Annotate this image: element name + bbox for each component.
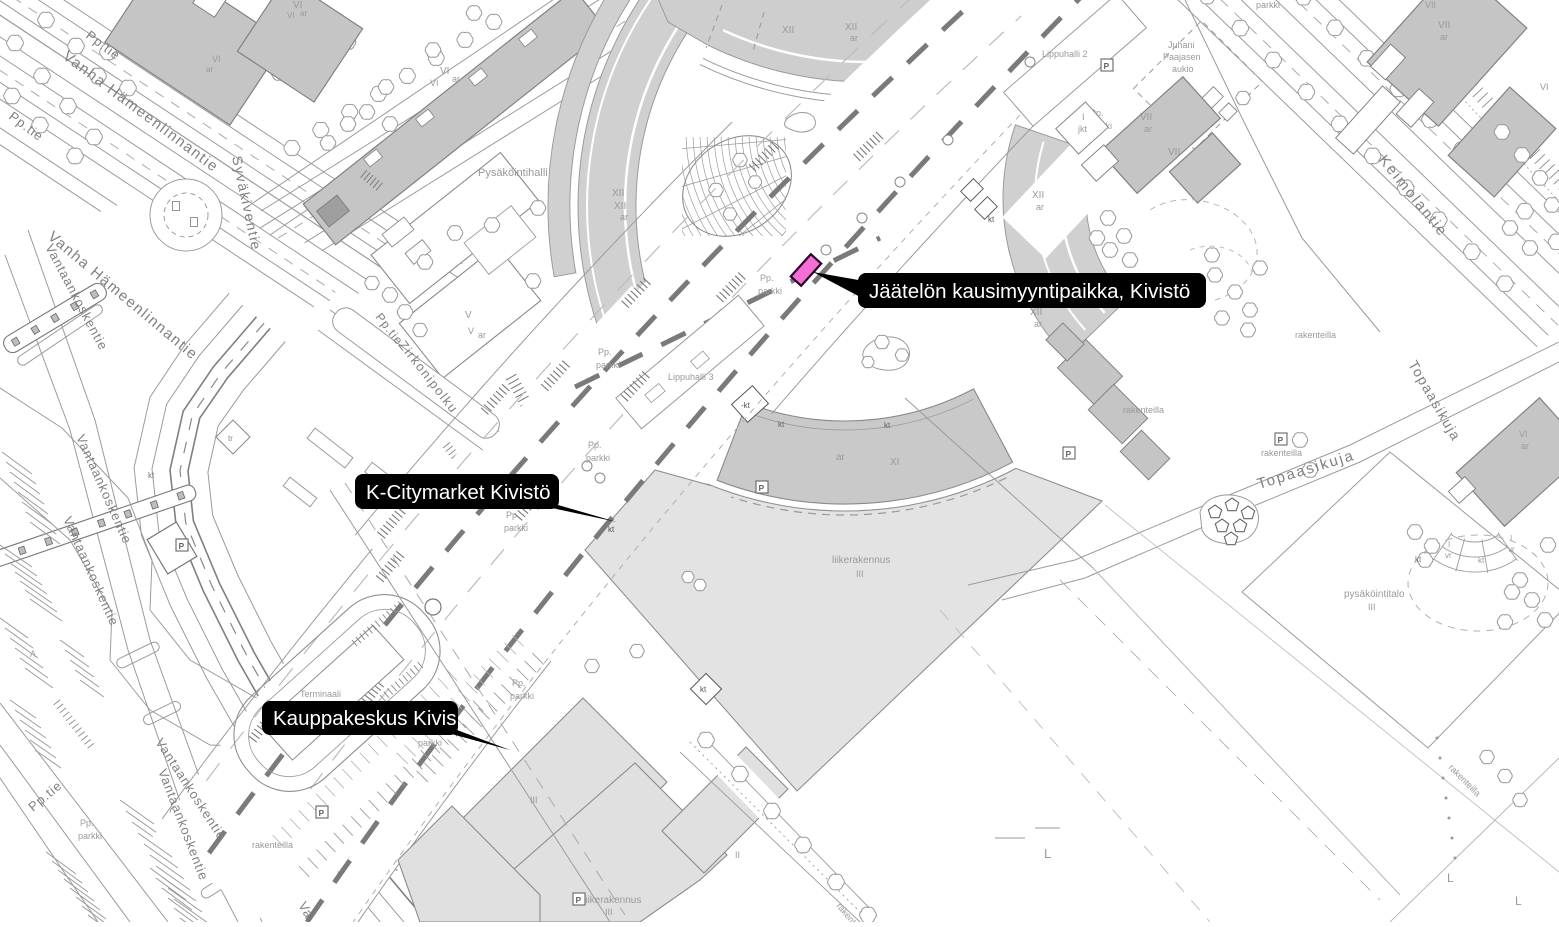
svg-text:Pp.: Pp.: [598, 347, 612, 357]
svg-text:L: L: [1447, 871, 1454, 885]
svg-text:P: P: [179, 541, 185, 551]
svg-text:aukio: aukio: [1172, 64, 1194, 74]
svg-text:parkki: parkki: [78, 831, 102, 841]
svg-text:rakenteilla: rakenteilla: [1123, 405, 1164, 415]
svg-text:Pp.: Pp.: [506, 510, 520, 520]
svg-text:parkki: parkki: [758, 286, 782, 296]
svg-text:parkki: parkki: [596, 360, 620, 370]
svg-text:parkki: parkki: [510, 691, 534, 701]
svg-text:VII: VII: [1425, 0, 1436, 10]
svg-text:VI: VI: [430, 78, 439, 88]
svg-text:VI: VI: [1540, 82, 1549, 92]
svg-text:VI: VI: [440, 66, 449, 77]
svg-text:XII: XII: [782, 25, 794, 36]
svg-text:VII: VII: [1438, 20, 1450, 31]
svg-text:ar: ar: [452, 74, 460, 84]
svg-text:P: P: [576, 895, 582, 905]
svg-text:ar: ar: [300, 9, 307, 18]
svg-text:III: III: [856, 569, 864, 579]
svg-text:rakenteilla: rakenteilla: [1295, 330, 1336, 340]
svg-text:Jäätelön kausimyyntipaikka, Ki: Jäätelön kausimyyntipaikka, Kivistö: [869, 280, 1190, 303]
svg-text:vr: vr: [1445, 551, 1452, 560]
svg-text:jkt: jkt: [1077, 124, 1087, 134]
svg-text:Pp.: Pp.: [80, 818, 94, 828]
svg-text:I: I: [1448, 540, 1450, 549]
svg-text:ar: ar: [206, 65, 213, 74]
svg-text:K-Citymarket Kivistö: K-Citymarket Kivistö: [366, 481, 551, 504]
svg-text:ar: ar: [1144, 124, 1152, 134]
svg-text:parkki: parkki: [586, 453, 610, 463]
svg-text:II: II: [735, 850, 740, 860]
svg-text:ar: ar: [1521, 441, 1529, 451]
svg-text:L: L: [1044, 846, 1051, 861]
svg-text:Kauppakeskus Kivis: Kauppakeskus Kivis: [273, 707, 456, 730]
svg-text:kt: kt: [700, 685, 707, 694]
svg-text:Juhani: Juhani: [1168, 40, 1195, 50]
svg-text:rakenteilla: rakenteilla: [252, 840, 293, 850]
svg-text:V: V: [465, 310, 472, 321]
svg-text:kt: kt: [988, 215, 995, 224]
svg-text:XII: XII: [612, 188, 624, 199]
svg-text:XII: XII: [1032, 190, 1044, 201]
svg-text:P: P: [759, 483, 765, 493]
svg-text:P: P: [1104, 61, 1110, 71]
svg-text:kt: kt: [884, 421, 891, 430]
svg-text:VII: VII: [1168, 147, 1180, 158]
svg-text:I: I: [1082, 112, 1085, 122]
svg-text:Λ: Λ: [30, 649, 36, 659]
svg-text:ar: ar: [478, 330, 486, 340]
svg-text:liikerakennus: liikerakennus: [832, 555, 890, 566]
svg-text:L: L: [1515, 894, 1522, 908]
svg-text:ar: ar: [836, 452, 846, 463]
svg-text:liikerakennus: liikerakennus: [583, 895, 641, 906]
svg-text:Lippuhalli 3: Lippuhalli 3: [668, 372, 714, 382]
svg-text:rakenteilla: rakenteilla: [1261, 448, 1302, 458]
svg-text:ar: ar: [1440, 32, 1448, 42]
svg-text:Pysäköintihalli: Pysäköintihalli: [478, 167, 548, 179]
svg-text:XII: XII: [614, 201, 626, 212]
svg-text:-kt: -kt: [741, 401, 751, 410]
svg-text:VII: VII: [1140, 112, 1152, 123]
svg-text:Pp.: Pp.: [588, 440, 602, 450]
svg-text:kt: kt: [1415, 555, 1422, 564]
svg-text:XII: XII: [1030, 307, 1042, 318]
svg-text:III: III: [1368, 602, 1376, 612]
svg-text:ar: ar: [850, 33, 858, 43]
svg-text:VI: VI: [1519, 429, 1528, 439]
svg-text:V: V: [468, 326, 474, 336]
svg-text:parkki: parkki: [504, 523, 528, 533]
svg-text:vr: vr: [1508, 545, 1515, 554]
svg-text:ar: ar: [1036, 202, 1044, 212]
svg-text:P: P: [1278, 435, 1284, 445]
svg-text:ar: ar: [620, 212, 628, 222]
svg-text:XII: XII: [845, 22, 857, 33]
svg-text:P: P: [319, 808, 325, 818]
svg-text:kt: kt: [778, 420, 785, 429]
svg-text:I: I: [1510, 534, 1512, 543]
svg-text:Pp.: Pp.: [760, 273, 774, 283]
svg-text:Paajasen: Paajasen: [1163, 52, 1201, 62]
svg-text:XI: XI: [890, 457, 899, 468]
svg-text:pysäköintitalo: pysäköintitalo: [1344, 589, 1405, 600]
svg-text:Terminaali: Terminaali: [300, 689, 341, 699]
svg-text:tr: tr: [228, 434, 233, 443]
svg-text:parkki: parkki: [1256, 0, 1280, 10]
svg-text:VI: VI: [212, 54, 221, 64]
svg-text:P: P: [1066, 449, 1072, 459]
svg-text:kt: kt: [1478, 556, 1485, 565]
svg-text:Lippuhalli 2: Lippuhalli 2: [1042, 49, 1088, 59]
svg-text:kt: kt: [608, 525, 615, 534]
svg-text:VI: VI: [287, 11, 295, 20]
svg-text:kt: kt: [148, 471, 155, 480]
svg-text:ar: ar: [1034, 319, 1042, 329]
